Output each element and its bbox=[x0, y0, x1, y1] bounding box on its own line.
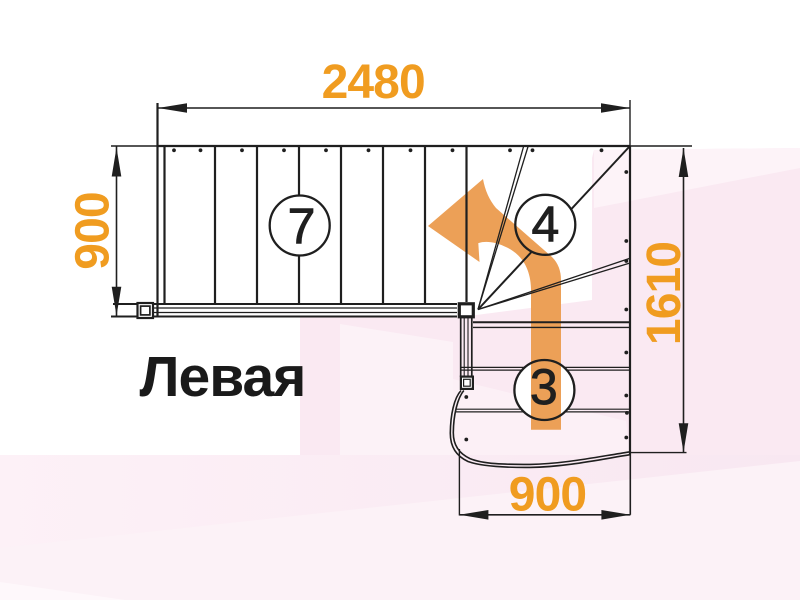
svg-text:7: 7 bbox=[288, 199, 316, 255]
svg-text:1610: 1610 bbox=[638, 242, 691, 345]
svg-text:900: 900 bbox=[67, 192, 120, 269]
svg-text:3: 3 bbox=[530, 359, 558, 415]
svg-text:Левая: Левая bbox=[140, 345, 306, 409]
svg-text:900: 900 bbox=[509, 468, 586, 521]
svg-text:4: 4 bbox=[531, 197, 559, 253]
svg-text:2480: 2480 bbox=[322, 56, 425, 109]
